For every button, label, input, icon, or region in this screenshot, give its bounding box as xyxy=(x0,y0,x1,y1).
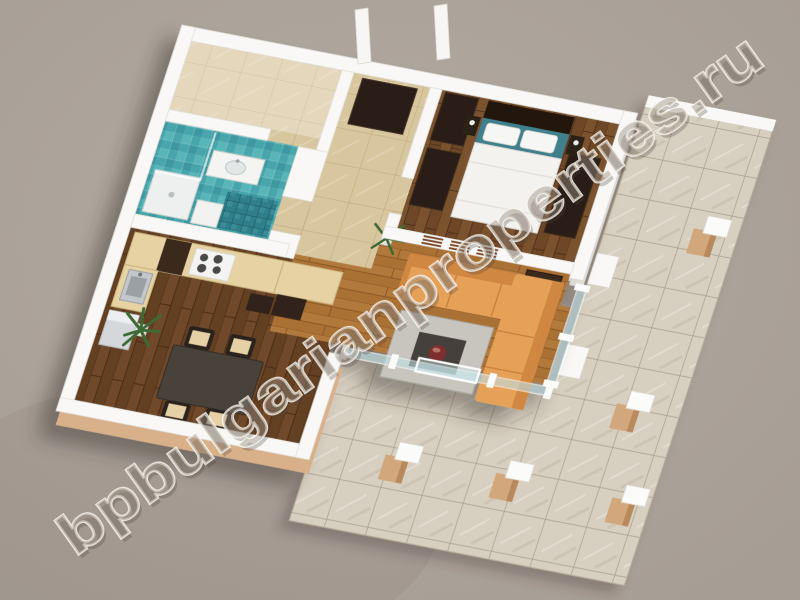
porch-post xyxy=(434,4,450,60)
floor-plan-svg: bpbulgarianproperties.ru bpbulgarianprop… xyxy=(0,0,800,600)
porch-post xyxy=(355,8,371,64)
floor-plan-render: bpbulgarianproperties.ru bpbulgarianprop… xyxy=(0,0,800,600)
